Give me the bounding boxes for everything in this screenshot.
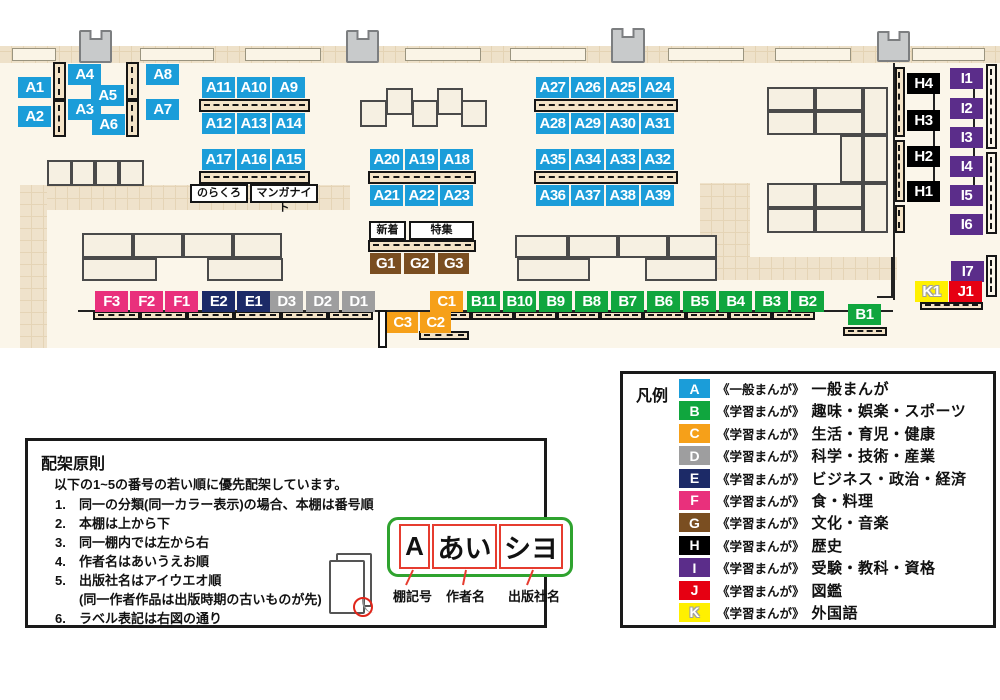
shelf: [686, 311, 729, 320]
legend-category-label: 趣味・娯楽・スポーツ: [812, 400, 967, 421]
pillar: [79, 30, 112, 63]
legend-category-label: 文化・音楽: [812, 512, 890, 533]
book-illustration: [329, 553, 375, 617]
table: [840, 135, 863, 183]
shelf-label-A16: A16: [237, 149, 270, 170]
legend-row-I: I《学習まんが》受験・教科・資格: [679, 558, 967, 577]
legend-chip-B: B: [679, 401, 710, 420]
principles-item-number: 2.: [55, 514, 79, 533]
legend-type: 《学習まんが》: [717, 513, 805, 532]
table: [568, 235, 618, 258]
shelf: [199, 171, 310, 184]
shelf: [986, 152, 997, 234]
shelf: [199, 99, 310, 112]
pillar-notch: [622, 28, 635, 38]
shelf: [920, 302, 983, 310]
shelf-label-A25: A25: [606, 77, 639, 98]
legend-category-label: 一般まんが: [812, 378, 890, 399]
shelf-label-I3: I3: [950, 127, 983, 148]
shelf-label-A8: A8: [146, 64, 179, 85]
shelf: [843, 327, 887, 336]
annotation-manga-night: マンガナイト: [250, 184, 318, 203]
legend-category-label: 科学・技術・産業: [812, 445, 936, 466]
shelf-label-A22: A22: [405, 185, 438, 206]
principles-item-text: 同一の分類(同一カラー表示)の場合、本棚は番号順: [79, 495, 374, 514]
shelf: [471, 311, 514, 320]
shelf-label-B6: B6: [647, 291, 680, 312]
shelf-label-A6: A6: [92, 114, 125, 135]
principles-item-2: 2.本棚は上から下: [55, 514, 374, 533]
table: [767, 183, 815, 208]
shelf: [895, 140, 905, 202]
shelf-label-A12: A12: [202, 113, 235, 134]
spine-box-1: A: [399, 524, 430, 569]
shelf: [234, 311, 281, 320]
wall-line: [891, 257, 893, 298]
shelf: [187, 311, 234, 320]
principles-item-4: 4.作者名はあいうえお順: [55, 552, 374, 571]
shelf: [140, 311, 187, 320]
legend-rows: A《一般まんが》一般まんがB《学習まんが》趣味・娯楽・スポーツC《学習まんが》生…: [679, 379, 967, 622]
shelf-label-A11: A11: [202, 77, 235, 98]
shelf: [328, 311, 373, 320]
principles-item-text: (同一作者作品は出版時期の古いものが先): [79, 590, 322, 609]
wall-window: [775, 48, 851, 61]
legend-type: 《学習まんが》: [717, 536, 805, 555]
legend-row-K: K《学習まんが》外国語: [679, 603, 967, 622]
legend-row-G: G《学習まんが》文化・音楽: [679, 513, 967, 532]
shelf: [729, 311, 772, 320]
legend-category-label: 図鑑: [812, 580, 843, 601]
wall-window: [510, 48, 586, 61]
shelf-label-A36: A36: [536, 185, 569, 206]
shelf-label-A7: A7: [146, 99, 179, 120]
principles-item-text: 同一棚内では左から右: [79, 533, 209, 552]
legend-chip-E: E: [679, 469, 710, 488]
pillar-notch: [89, 30, 102, 40]
legend-chip-I: I: [679, 558, 710, 577]
legend-row-A: A《一般まんが》一般まんが: [679, 379, 967, 398]
pillar: [877, 31, 910, 62]
table: [183, 233, 233, 258]
shelf-label-K1: K1: [915, 281, 948, 302]
shelf: [772, 311, 815, 320]
shelf-label-F1: F1: [165, 291, 198, 312]
shelf: [368, 171, 476, 184]
principles-item-7: 6.ラベル表記は右図の通り: [55, 609, 374, 628]
shelf-label-A21: A21: [370, 185, 403, 206]
table: [517, 258, 590, 281]
legend-type: 《学習まんが》: [717, 424, 805, 443]
shelf-label-H2: H2: [907, 146, 940, 167]
principles-item-text: 本棚は上から下: [79, 514, 170, 533]
table: [767, 111, 815, 135]
table: [767, 208, 815, 233]
legend-category-label: 受験・教科・資格: [812, 557, 936, 578]
legend-type: 《学習まんが》: [717, 558, 805, 577]
table: [767, 87, 815, 111]
shelf-label-H1: H1: [907, 181, 940, 202]
table: [437, 88, 463, 115]
shelf-label-A34: A34: [571, 149, 604, 170]
shelf: [514, 311, 557, 320]
shelf-label-A26: A26: [571, 77, 604, 98]
legend-chip-F: F: [679, 491, 710, 510]
legend-type: 《学習まんが》: [717, 446, 805, 465]
table: [645, 258, 717, 281]
spine-caption-2: 作者名: [446, 586, 485, 605]
shelf-label-D2: D2: [306, 291, 339, 312]
shelf-label-B1: B1: [848, 304, 881, 325]
shelf-label-A39: A39: [641, 185, 674, 206]
shelf-label-I4: I4: [950, 156, 983, 177]
wall-window: [405, 48, 481, 61]
shelf-label-A17: A17: [202, 149, 235, 170]
legend-title: 凡例: [636, 382, 668, 406]
wall-window: [668, 48, 744, 61]
shelf-label-C3: C3: [387, 312, 418, 333]
spine-caption-1: 棚記号: [393, 586, 432, 605]
shelf-label-A24: A24: [641, 77, 674, 98]
shelf-label-I5: I5: [950, 185, 983, 206]
shelf: [126, 62, 139, 100]
table: [815, 111, 863, 135]
shelf: [986, 64, 997, 149]
shelf-label-A1: A1: [18, 77, 51, 98]
table: [233, 233, 282, 258]
shelf-label-H3: H3: [907, 110, 940, 131]
legend-row-C: C《学習まんが》生活・育児・健康: [679, 424, 967, 443]
legend-row-E: E《学習まんが》ビジネス・政治・経済: [679, 469, 967, 488]
shelf-label-A14: A14: [272, 113, 305, 134]
table: [133, 233, 183, 258]
legend-chip-A: A: [679, 379, 710, 398]
legend-chip-D: D: [679, 446, 710, 465]
shelf: [93, 311, 140, 320]
shelf: [53, 62, 66, 100]
shelf: [895, 67, 905, 137]
wall-window: [912, 48, 985, 61]
table: [386, 88, 413, 115]
shelf-label-A10: A10: [237, 77, 270, 98]
shelf-label-D1: D1: [342, 291, 375, 312]
shelf-label-A19: A19: [405, 149, 438, 170]
shelf-label-A23: A23: [440, 185, 473, 206]
principles-item-text: 出版社名はアイウエオ順: [79, 571, 221, 590]
wall-window: [140, 48, 214, 61]
library-floor-map-page: A1A2A3A4A5A6A7A8A9A10A11A12A13A14A15A16A…: [0, 0, 1000, 700]
table: [618, 235, 668, 258]
shelf-label-A4: A4: [68, 64, 101, 85]
principles-title: 配架原則: [41, 450, 105, 474]
table: [815, 87, 863, 111]
legend-chip-K: K: [679, 603, 710, 622]
table: [461, 100, 487, 127]
shelf-label-A18: A18: [440, 149, 473, 170]
shelf-label-I7: I7: [951, 261, 984, 282]
table: [82, 233, 133, 258]
table: [71, 160, 95, 186]
spine-caption-3: 出版社名: [508, 586, 560, 605]
shelf-label-A35: A35: [536, 149, 569, 170]
wall-window: [245, 48, 321, 61]
shelf: [53, 100, 66, 137]
shelf-label-E2: E2: [202, 291, 235, 312]
wall-window: [12, 48, 56, 61]
shelf-label-A13: A13: [237, 113, 270, 134]
shelf-label-C2: C2: [420, 312, 451, 333]
legend-row-B: B《学習まんが》趣味・娯楽・スポーツ: [679, 401, 967, 420]
legend-type: 《学習まんが》: [717, 603, 805, 622]
shelf-label-B5: B5: [683, 291, 716, 312]
shelf: [368, 240, 476, 252]
table: [47, 160, 72, 186]
legend-category-label: 歴史: [812, 535, 843, 556]
legend-type: 《学習まんが》: [717, 581, 805, 600]
table: [412, 100, 438, 127]
table: [863, 183, 888, 233]
shelf-label-A28: A28: [536, 113, 569, 134]
shelf-label-B4: B4: [719, 291, 752, 312]
table: [207, 258, 283, 281]
principles-item-number: 4.: [55, 552, 79, 571]
legend-type: 《学習まんが》: [717, 401, 805, 420]
shelf-label-A30: A30: [606, 113, 639, 134]
legend-box: 凡例 A《一般まんが》一般まんがB《学習まんが》趣味・娯楽・スポーツC《学習まん…: [620, 371, 996, 628]
shelf-label-I1: I1: [950, 68, 983, 89]
table: [95, 160, 119, 186]
shelf: [557, 311, 600, 320]
legend-chip-H: H: [679, 536, 710, 555]
label-position-circle: [353, 597, 373, 617]
table: [119, 160, 144, 186]
table: [863, 87, 888, 135]
shelf-label-A33: A33: [606, 149, 639, 170]
shelf-label-D3: D3: [270, 291, 303, 312]
table: [668, 235, 717, 258]
annotation-shinchaku: 新着: [369, 221, 406, 240]
carpet-area: [20, 185, 47, 348]
principles-item-number: 5.: [55, 571, 79, 590]
principles-list: 1.同一の分類(同一カラー表示)の場合、本棚は番号順2.本棚は上から下3.同一棚…: [55, 495, 374, 628]
pillar-notch: [887, 31, 900, 41]
shelf-label-G1: G1: [370, 253, 401, 274]
shelf-label-A31: A31: [641, 113, 674, 134]
shelf-label-B8: B8: [575, 291, 608, 312]
principles-item-6: (同一作者作品は出版時期の古いものが先): [55, 590, 374, 609]
shelf-label-B10: B10: [503, 291, 536, 312]
principles-item-5: 5.出版社名はアイウエオ順: [55, 571, 374, 590]
shelf-label-I2: I2: [950, 98, 983, 119]
shelf-label-A27: A27: [536, 77, 569, 98]
legend-category-label: 外国語: [812, 602, 859, 623]
principles-item-1: 1.同一の分類(同一カラー表示)の場合、本棚は番号順: [55, 495, 374, 514]
principles-intro: 以下の1~5の番号の若い順に優先配架しています。: [54, 474, 347, 493]
legend-chip-C: C: [679, 424, 710, 443]
principles-item-text: ラベル表記は右図の通り: [79, 609, 222, 628]
legend-type: 《一般まんが》: [717, 379, 805, 398]
legend-category-label: 生活・育児・健康: [812, 423, 936, 444]
spine-box-3: シヨ: [499, 524, 563, 569]
legend-type: 《学習まんが》: [717, 491, 805, 510]
shelf-label-A38: A38: [606, 185, 639, 206]
principles-item-3: 3.同一棚内では左から右: [55, 533, 374, 552]
legend-row-D: D《学習まんが》科学・技術・産業: [679, 446, 967, 465]
shelf-label-I6: I6: [950, 214, 983, 235]
annotation-tokushu: 特集: [409, 221, 474, 240]
spine-box-2: あい: [432, 524, 497, 569]
shelf-label-A29: A29: [571, 113, 604, 134]
principles-item-number: 3.: [55, 533, 79, 552]
table: [815, 183, 863, 208]
legend-chip-J: J: [679, 581, 710, 600]
shelf: [126, 100, 139, 137]
shelf-label-F2: F2: [130, 291, 163, 312]
shelf: [600, 311, 643, 320]
shelf-label-G2: G2: [404, 253, 435, 274]
wall-stub: [378, 310, 387, 348]
shelf-label-A2: A2: [18, 106, 51, 127]
legend-category-label: 食・料理: [812, 490, 874, 511]
shelf-label-H4: H4: [907, 73, 940, 94]
shelf-label-A9: A9: [272, 77, 305, 98]
pillar: [346, 30, 379, 63]
wall-line: [893, 63, 895, 300]
shelf: [643, 311, 686, 320]
principles-item-number: 6.: [55, 609, 79, 628]
table: [360, 100, 387, 127]
shelf-label-B11: B11: [467, 291, 500, 312]
principles-item-number: 1.: [55, 495, 79, 514]
legend-category-label: ビジネス・政治・経済: [812, 468, 967, 489]
shelf-label-B3: B3: [755, 291, 788, 312]
shelf-label-F3: F3: [95, 291, 128, 312]
shelf-label-B9: B9: [539, 291, 572, 312]
shelf-label-A32: A32: [641, 149, 674, 170]
shelf: [281, 311, 328, 320]
shelf: [534, 99, 678, 112]
legend-row-J: J《学習まんが》図鑑: [679, 581, 967, 600]
legend-chip-G: G: [679, 513, 710, 532]
shelf-label-A37: A37: [571, 185, 604, 206]
legend-row-H: H《学習まんが》歴史: [679, 536, 967, 555]
shelf-label-E1: E1: [237, 291, 270, 312]
shelf-label-A20: A20: [370, 149, 403, 170]
legend-type: 《学習まんが》: [717, 469, 805, 488]
shelf: [534, 171, 678, 184]
shelf-label-A15: A15: [272, 149, 305, 170]
table: [82, 258, 157, 281]
shelf-label-A5: A5: [91, 85, 124, 106]
shelf: [986, 255, 997, 297]
carpet-area: [700, 257, 897, 280]
table: [815, 208, 863, 233]
shelf-label-B2: B2: [791, 291, 824, 312]
shelf-label-G3: G3: [438, 253, 469, 274]
shelf-label-C1: C1: [430, 291, 463, 312]
pillar: [611, 28, 645, 63]
shelf: [895, 205, 905, 233]
table: [515, 235, 568, 258]
pillar-notch: [356, 30, 369, 40]
principles-item-text: 作者名はあいうえお順: [79, 552, 209, 571]
shelf-label-B7: B7: [611, 291, 644, 312]
wall-line: [877, 296, 893, 298]
annotation-norakuro: のらくろ: [190, 184, 248, 203]
legend-row-F: F《学習まんが》食・料理: [679, 491, 967, 510]
table: [863, 135, 888, 183]
shelf-label-J1: J1: [949, 281, 982, 302]
